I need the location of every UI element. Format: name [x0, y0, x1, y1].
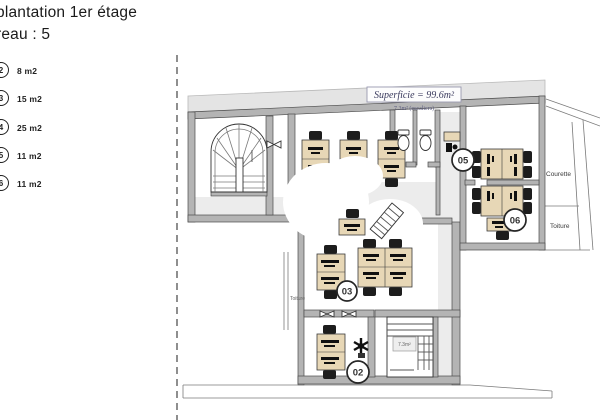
room-marker-05: 05 — [452, 149, 474, 171]
room05-desks — [472, 149, 532, 179]
room-marker-03: 03 — [337, 281, 357, 301]
terrace-outline — [183, 385, 552, 398]
superficie-text: Superficie = 99.6m² — [374, 90, 455, 101]
svg-text:03: 03 — [342, 287, 353, 298]
toilet-icon — [420, 130, 431, 151]
corridor-landing — [195, 197, 290, 215]
svg-text:02: 02 — [353, 368, 364, 379]
stair-area-label: 7.3m² — [398, 342, 411, 348]
superficie-subtext: 7.3m² (escaliers) — [394, 105, 434, 112]
room03-desks — [317, 239, 412, 299]
courette-label: Courette — [546, 171, 571, 178]
corridor-side — [438, 224, 452, 376]
floor-plan: Courette Toiture — [0, 0, 600, 420]
back-staircase: 7.3m² — [387, 317, 433, 377]
main-staircase — [211, 124, 267, 192]
svg-text:05: 05 — [458, 156, 469, 167]
room-marker-06: 06 — [504, 209, 526, 231]
plant-icon — [354, 338, 368, 358]
toilet-icon — [398, 130, 409, 151]
room02-desk — [317, 325, 345, 379]
toiture-left-label: Toiture — [290, 296, 305, 302]
room-marker-02: 02 — [347, 361, 369, 383]
toiture-right-label: Toiture — [550, 223, 570, 230]
svg-text:06: 06 — [510, 216, 521, 227]
door-symbol — [267, 141, 281, 148]
plan-viewer: plantation 1er étage reau : 5 2 8 m2 3 1… — [0, 0, 600, 420]
